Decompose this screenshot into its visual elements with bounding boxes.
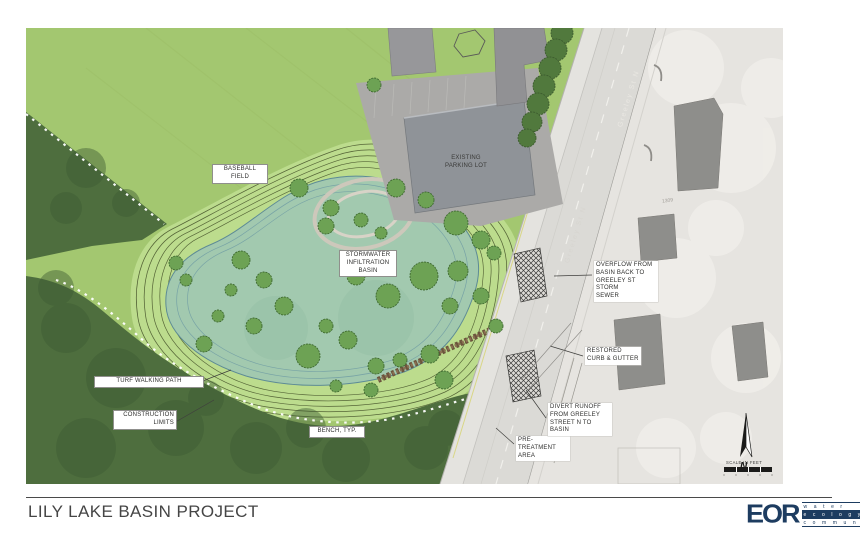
- title-divider-line: [26, 497, 832, 498]
- plan-sheet: N SCALE IN FEET BASEBALL FIELD EXISTING …: [0, 0, 860, 556]
- label-bench-typ: BENCH, TYP.: [309, 426, 365, 438]
- label-restored-curb-gutter: RESTORED CURB & GUTTER: [585, 347, 641, 365]
- eor-logo-tagline: w a t e r e c o l o g y c o m m u n i t …: [802, 502, 860, 527]
- label-pre-treatment-area: PRE-TREATMENT AREA: [516, 436, 570, 461]
- label-turf-walking-path: TURF WALKING PATH: [94, 376, 204, 388]
- scale-caption: SCALE IN FEET: [726, 460, 762, 465]
- eor-logo-text: EOR: [746, 504, 799, 526]
- logo-word-community: c o m m u n i t y: [802, 519, 860, 527]
- label-existing-parking-lot: EXISTING PARKING LOT: [433, 154, 499, 172]
- label-construction-limits: CONSTRUCTION LIMITS: [113, 410, 177, 430]
- label-stormwater-basin: STORMWATER INFILTRATION BASIN: [339, 250, 397, 277]
- label-baseball-field: BASEBALL FIELD: [212, 164, 268, 184]
- label-divert-runoff: DIVERT RUNOFF FROM GREELEY STREET N TO B…: [548, 403, 612, 436]
- logo-word-water: w a t e r: [802, 503, 860, 511]
- eor-logo: EOR w a t e r e c o l o g y c o m m u n …: [746, 502, 860, 527]
- project-title: LILY LAKE BASIN PROJECT: [28, 502, 259, 522]
- label-overflow: OVERFLOW FROM BASIN BACK TO GREELEY ST S…: [594, 261, 658, 302]
- logo-word-ecology: e c o l o g y: [802, 511, 860, 519]
- site-plan-map: N SCALE IN FEET BASEBALL FIELD EXISTING …: [26, 28, 783, 484]
